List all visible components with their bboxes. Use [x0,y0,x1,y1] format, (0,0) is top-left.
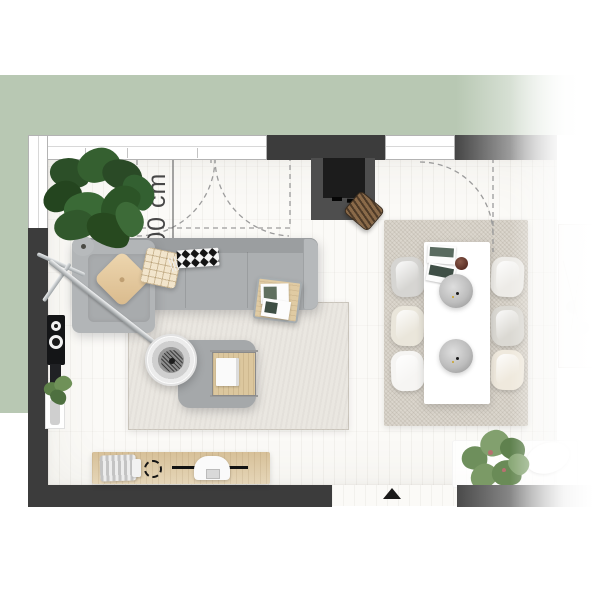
wall-top [267,135,385,160]
wall-bottom-faded [457,485,592,507]
card-slot [206,469,220,479]
lamp-bulb [169,358,175,364]
pendant-cord [456,357,459,360]
magazine-cover [429,247,454,258]
tray-book [216,358,239,386]
dining-chair [390,350,424,391]
large-plant [42,148,160,260]
fireplace-vent [332,197,342,201]
magazine [427,245,456,265]
chair-seat [495,354,519,387]
wall-bottom [28,485,332,507]
wall-top-faded [455,135,557,160]
dining-chair [390,305,424,346]
pendant-detail [452,296,454,298]
decor-clock-icon [144,460,162,478]
pillow-button [118,276,125,283]
entrance-marker [383,488,401,499]
floor-lamp-shade [145,334,197,386]
window-tick [197,148,198,158]
floor-plan: ≥100 cm [0,0,600,600]
card-stand [194,456,230,480]
chair-seat [395,355,419,388]
floor-plant [462,428,528,492]
magazine [261,298,291,320]
flower [488,450,493,455]
dining-chair [490,349,524,390]
pendant-cord [456,292,459,295]
chair-seat [395,260,420,293]
single-door-swing-icon [420,158,493,252]
fruit-bowl [455,257,468,270]
sofa-armrest [303,239,318,309]
door-threshold [385,135,455,160]
side-table [253,276,303,323]
throw-blanket [176,248,219,269]
sofa-seam [247,252,248,308]
pendant-lamp [439,339,473,373]
chair-seat [495,260,520,293]
dining-chair [390,256,425,298]
dining-chair [490,305,524,346]
chair-seat [495,310,519,343]
magazine-cover [264,301,278,314]
speaker-tweeter [51,321,61,331]
dining-chair [490,256,525,298]
threshold-line [386,146,454,147]
speaker-cap [132,459,141,477]
pendant-lamp [439,274,473,308]
pleated-speaker [100,454,137,481]
loudspeaker [47,315,65,365]
pendant-detail [452,361,454,363]
wall-left [28,228,48,507]
flower [502,468,506,472]
window-mullion [38,136,39,228]
media-console [92,452,270,484]
plant-stem [81,244,86,249]
chair-seat [395,310,419,343]
speaker-woofer [49,335,63,349]
small-plant [44,374,74,406]
